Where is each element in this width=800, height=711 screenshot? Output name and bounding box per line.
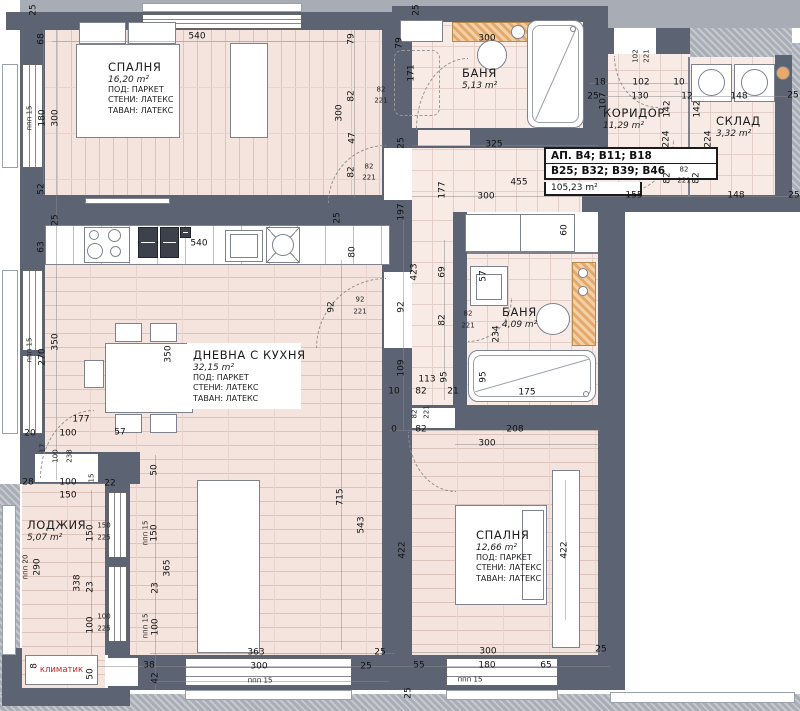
stove-burner-4 xyxy=(110,246,121,257)
floor-plan: климатик АП. В4; В11; В18 В25; В32; В39;… xyxy=(0,0,800,711)
room-area: 16,20 m² xyxy=(108,75,200,85)
apartment-numbers-1: АП. В4; В11; В18 xyxy=(546,149,716,164)
wall-topright-bottom xyxy=(582,195,800,212)
sofa xyxy=(197,480,260,653)
bathroom1-faucet xyxy=(511,25,525,39)
dimension-label: 82 xyxy=(365,164,374,171)
room-floor-finish: ПОД: ПАРКЕТ xyxy=(476,553,568,563)
dim-line xyxy=(598,96,796,97)
dimension-label: 25 xyxy=(52,214,61,225)
dimension-label: 102 xyxy=(633,49,640,62)
dimension-label: 63 xyxy=(38,241,47,252)
dimension-label: 175 xyxy=(518,389,535,398)
room-name: ДНЕВНА С КУХНЯ xyxy=(193,348,295,362)
dimension-label: ппп 15 xyxy=(143,614,150,639)
appliance-small xyxy=(180,227,191,238)
dimension-label: 17 xyxy=(40,444,47,453)
dimension-label: 300 xyxy=(477,193,494,202)
dimension-label: 142 xyxy=(664,100,673,117)
bathtub1 xyxy=(527,20,584,128)
room-ceiling-finish: ТАВАН: ЛАТЕКС xyxy=(108,106,200,116)
dimension-label: 171 xyxy=(408,64,417,81)
dimension-label: 55 xyxy=(413,662,424,671)
bathtub2-drain xyxy=(583,391,589,397)
stove-burner-3 xyxy=(87,243,103,259)
room-area: 3,32 m² xyxy=(716,129,788,139)
dimension-label: 25 xyxy=(413,4,422,15)
dimension-label: 300 xyxy=(250,663,267,672)
dim-line xyxy=(155,455,156,690)
dimension-label: 100 xyxy=(59,430,76,439)
bedroom2-bottom-sill xyxy=(446,690,558,700)
dimension-label: 221 xyxy=(644,49,651,62)
bedroom1-window-sill xyxy=(142,3,302,12)
dimension-label: 350 xyxy=(165,345,174,362)
dimension-label: 225 xyxy=(97,626,110,633)
hallway-floor xyxy=(412,212,455,430)
door-opening-bedroom1 xyxy=(384,148,412,200)
dimension-label: 150 xyxy=(97,523,110,530)
dimension-label: 79 xyxy=(348,33,357,44)
dimension-label: 82 xyxy=(348,166,357,177)
dimension-label: 234 xyxy=(493,325,502,342)
dimension-label: 82 xyxy=(680,167,689,174)
room-label: БАНЯ 4,09 m² xyxy=(502,305,562,330)
dimension-label: 208 xyxy=(506,426,523,435)
dimension-label: 221 xyxy=(424,405,431,418)
room-area: 5,13 m² xyxy=(462,81,522,91)
dimension-label: 100 xyxy=(53,449,60,462)
dimension-label: 221 xyxy=(362,175,375,182)
wall-entry-right xyxy=(656,28,690,54)
dimension-label: ппп 15 xyxy=(458,677,483,684)
dimension-label: 25 xyxy=(360,663,371,672)
dimension-label: 540 xyxy=(190,240,207,249)
dimension-label: 95 xyxy=(480,371,489,382)
dimension-label: 100 xyxy=(97,614,110,621)
dim-line xyxy=(455,444,600,445)
dim-line xyxy=(56,30,57,480)
room-ceiling-finish: ТАВАН: ЛАТЕКС xyxy=(193,394,295,404)
dimension-label: 21 xyxy=(447,388,458,397)
room-label: СПАЛНЯ 16,20 m² ПОД: ПАРКЕТ СТЕНИ: ЛАТЕК… xyxy=(108,60,200,116)
dimension-label: 300 xyxy=(478,440,495,449)
dimension-label: 69 xyxy=(439,266,448,277)
dimension-label: 423 xyxy=(411,263,420,280)
dimension-label: ппп 15 xyxy=(27,338,34,363)
dim-line xyxy=(341,260,342,650)
dimension-label: 25 xyxy=(398,137,407,148)
dimension-label: 100 xyxy=(87,616,96,633)
dimension-label: 365 xyxy=(164,559,173,576)
dimension-label: 0 xyxy=(391,426,397,435)
room-wall-finish: СТЕНИ: ЛАТЕКС xyxy=(476,563,568,573)
wall-right-lower xyxy=(598,212,625,690)
dimension-label: 82 xyxy=(415,426,426,435)
dimension-label: 221 xyxy=(374,98,387,105)
dimension-label: 177 xyxy=(439,181,448,198)
dimension-label: 82 xyxy=(377,87,386,94)
dim-line xyxy=(412,145,598,146)
dimension-label: 180 xyxy=(478,662,495,671)
dimension-label: 270 xyxy=(39,348,48,365)
appliance-column xyxy=(160,227,179,258)
dimension-label: 363 xyxy=(247,649,264,658)
room-label: БАНЯ 5,13 m² xyxy=(462,66,522,91)
dimension-label: 8 xyxy=(31,663,40,669)
exterior-hatch-top-right xyxy=(690,28,792,57)
dimension-label: 150 xyxy=(151,524,160,541)
dimension-label: 60 xyxy=(561,224,570,235)
washing-machine-1-drum xyxy=(698,69,725,96)
dimension-label: 82 xyxy=(464,311,473,318)
bathroom2-top-divider xyxy=(467,252,598,254)
stove-burner-1 xyxy=(89,230,99,240)
wall-loggia-bottom xyxy=(2,688,130,706)
dimension-label: 540 xyxy=(188,33,205,42)
dimension-label: 25 xyxy=(374,649,385,658)
porch-sill xyxy=(610,692,795,703)
dimension-label: 455 xyxy=(510,179,527,188)
dimension-label: 18 xyxy=(594,79,605,88)
dimension-label: ппп 15 xyxy=(143,521,150,546)
dimension-label: 109 xyxy=(398,359,407,376)
dimension-label: 57 xyxy=(480,270,489,281)
dining-table xyxy=(105,343,193,413)
bathroom1-cabinet xyxy=(400,20,443,42)
dimension-label: 177 xyxy=(72,416,89,425)
dimension-label: 82 xyxy=(439,314,448,325)
dimension-label: 95 xyxy=(441,371,450,382)
dimension-label: 15 xyxy=(89,474,96,483)
dimension-label: 148 xyxy=(727,192,744,201)
dimension-label: 113 xyxy=(418,376,435,385)
dimension-label: 42 xyxy=(152,672,161,683)
dimension-label: 221 xyxy=(353,309,366,316)
dimension-label: 100 xyxy=(59,479,76,488)
dimension-label: 338 xyxy=(74,574,83,591)
exterior-top-right xyxy=(598,0,800,28)
dimension-label: 180 xyxy=(39,109,48,126)
dimension-label: 224 xyxy=(705,130,714,147)
dimension-label: 150 xyxy=(87,524,96,541)
dimension-label: 47 xyxy=(349,132,358,143)
loggia-outer-sill xyxy=(2,505,16,655)
dimension-label: 80 xyxy=(349,246,358,257)
room-area: 32,15 m² xyxy=(193,363,295,373)
living-left-sill xyxy=(2,270,18,434)
dimension-label: 225 xyxy=(97,535,110,542)
room-name: БАНЯ xyxy=(462,66,522,80)
dimension-label: 107 xyxy=(600,92,609,109)
water-heater-dial-2 xyxy=(578,286,588,296)
dimension-label: 25 xyxy=(595,646,606,655)
dimension-label: 300 xyxy=(52,109,61,126)
dimension-label: 715 xyxy=(337,488,346,505)
dimension-label: 300 xyxy=(478,35,495,44)
dim-line xyxy=(412,652,602,653)
dimension-label: 221 xyxy=(677,178,690,185)
dimension-label: ппп 15 xyxy=(248,678,273,685)
loggia-window-2 xyxy=(108,566,127,642)
dimension-label: 25 xyxy=(30,4,39,15)
room-area: 12,66 m² xyxy=(476,543,568,553)
dimension-label: 100 xyxy=(152,618,161,635)
dimension-label: 148 xyxy=(730,93,747,102)
dimension-label: 65 xyxy=(540,662,551,671)
storage-fixture xyxy=(776,66,790,80)
dim-line xyxy=(30,666,610,667)
living-bottom-sill xyxy=(185,690,352,700)
room-area: 4,09 m² xyxy=(502,320,562,330)
dimension-label: 82 xyxy=(693,172,702,183)
dimension-label: 82 xyxy=(415,388,426,397)
oven xyxy=(138,227,158,258)
dimension-label: 38 xyxy=(143,662,154,671)
dimension-label: 300 xyxy=(479,648,496,657)
dimension-label: 221 xyxy=(461,323,474,330)
dim-line xyxy=(150,653,395,654)
room-name: СПАЛНЯ xyxy=(108,60,200,74)
wall-entry-left xyxy=(598,28,614,54)
dimension-label: 92 xyxy=(356,297,365,304)
dimension-label: 23 xyxy=(87,581,96,592)
dimension-label: 22 xyxy=(104,480,115,489)
room-floor-finish: ПОД: ПАРКЕТ xyxy=(193,373,295,383)
bathroom2-closet-divider xyxy=(520,214,521,252)
room-name: СКЛАД xyxy=(716,114,788,128)
kitchen-sink-bowl xyxy=(272,234,294,256)
room-floor-finish: ПОД: ПАРКЕТ xyxy=(108,85,200,95)
dimension-label: 142 xyxy=(694,100,703,117)
dimension-label: 57 xyxy=(114,429,125,438)
room-wall-finish: СТЕНИ: ЛАТЕКС xyxy=(108,95,200,105)
dimension-label: 10 xyxy=(388,388,399,397)
dimension-label: 25 xyxy=(787,92,798,101)
wall-corner-stub xyxy=(6,12,20,30)
dimension-label: 422 xyxy=(399,541,408,558)
exterior-hatch-right xyxy=(792,43,800,196)
dimension-label: ппп 15 xyxy=(27,106,34,131)
dimension-label: 25 xyxy=(405,687,414,698)
dimension-label: 12 xyxy=(681,93,692,102)
dimension-label: 50 xyxy=(151,464,160,475)
dimension-label: 25 xyxy=(788,192,799,201)
dimension-label: 23 xyxy=(152,582,161,593)
dimension-label: ппп 20 xyxy=(23,555,30,580)
air-conditioner-label: климатик xyxy=(40,665,83,675)
dimension-label: 82 xyxy=(348,90,357,101)
dimension-label: 82 xyxy=(412,410,419,419)
dimension-label: 102 xyxy=(632,79,649,88)
dim-line xyxy=(403,212,404,430)
dimension-label: 10 xyxy=(673,79,684,88)
dimension-label: 25 xyxy=(587,93,598,102)
chair-left xyxy=(84,360,104,388)
dimension-label: 52 xyxy=(38,183,47,194)
dimension-label: 92 xyxy=(398,301,407,312)
water-heater-dial-1 xyxy=(578,268,588,278)
dimension-label: 79 xyxy=(396,37,405,48)
dimension-label: 350 xyxy=(52,333,61,350)
room-name: СПАЛНЯ xyxy=(476,528,568,542)
chair-bottom-2 xyxy=(150,414,177,433)
apartment-numbers-2: В25; В32; В39; В46 xyxy=(546,164,716,178)
dimension-label: 92 xyxy=(328,301,337,312)
stove-burner-2 xyxy=(108,229,121,242)
dimension-label: 422 xyxy=(561,541,570,558)
dimension-label: 224 xyxy=(663,130,672,147)
room-name: БАНЯ xyxy=(502,305,562,319)
wall-central-low xyxy=(382,405,412,655)
chair-top-2 xyxy=(150,323,177,342)
dimension-label: 25 xyxy=(334,212,343,223)
bathtub1-drain xyxy=(570,26,576,32)
room-label: СКЛАД 3,32 m² xyxy=(716,114,788,139)
chair-top-1 xyxy=(115,323,142,342)
room-wall-finish: СТЕНИ: ЛАТЕКС xyxy=(193,383,295,393)
dimension-label: 28 xyxy=(22,479,33,488)
dimension-label: 150 xyxy=(59,492,76,501)
dimension-label: 20 xyxy=(24,430,35,439)
dimension-label: 300 xyxy=(336,104,345,121)
dimension-label: 238 xyxy=(67,449,74,462)
dishwasher-inner xyxy=(230,234,258,258)
bedroom1-radiator xyxy=(85,198,170,204)
dimension-label: 50 xyxy=(87,668,96,679)
dimension-label: 197 xyxy=(398,203,407,220)
dimension-label: 543 xyxy=(358,516,367,533)
door-opening-bathroom1 xyxy=(418,130,470,146)
dimension-label: 82 xyxy=(664,172,673,183)
living-loggia-pass xyxy=(108,658,138,686)
dimension-label: 325 xyxy=(485,141,502,150)
dimension-label: 290 xyxy=(34,558,43,575)
dimension-label: 155 xyxy=(625,192,642,201)
wardrobe1 xyxy=(230,43,268,138)
room-ceiling-finish: ТАВАН: ЛАТЕКС xyxy=(476,574,568,584)
bedroom1-left-sill xyxy=(2,64,18,168)
loggia-window-1 xyxy=(108,492,127,558)
room-label: СПАЛНЯ 12,66 m² ПОД: ПАРКЕТ СТЕНИ: ЛАТЕК… xyxy=(476,528,568,584)
room-label: ДНЕВНА С КУХНЯ 32,15 m² ПОД: ПАРКЕТ СТЕН… xyxy=(188,344,300,408)
dimension-label: 68 xyxy=(38,33,47,44)
dimension-label: 130 xyxy=(631,93,648,102)
